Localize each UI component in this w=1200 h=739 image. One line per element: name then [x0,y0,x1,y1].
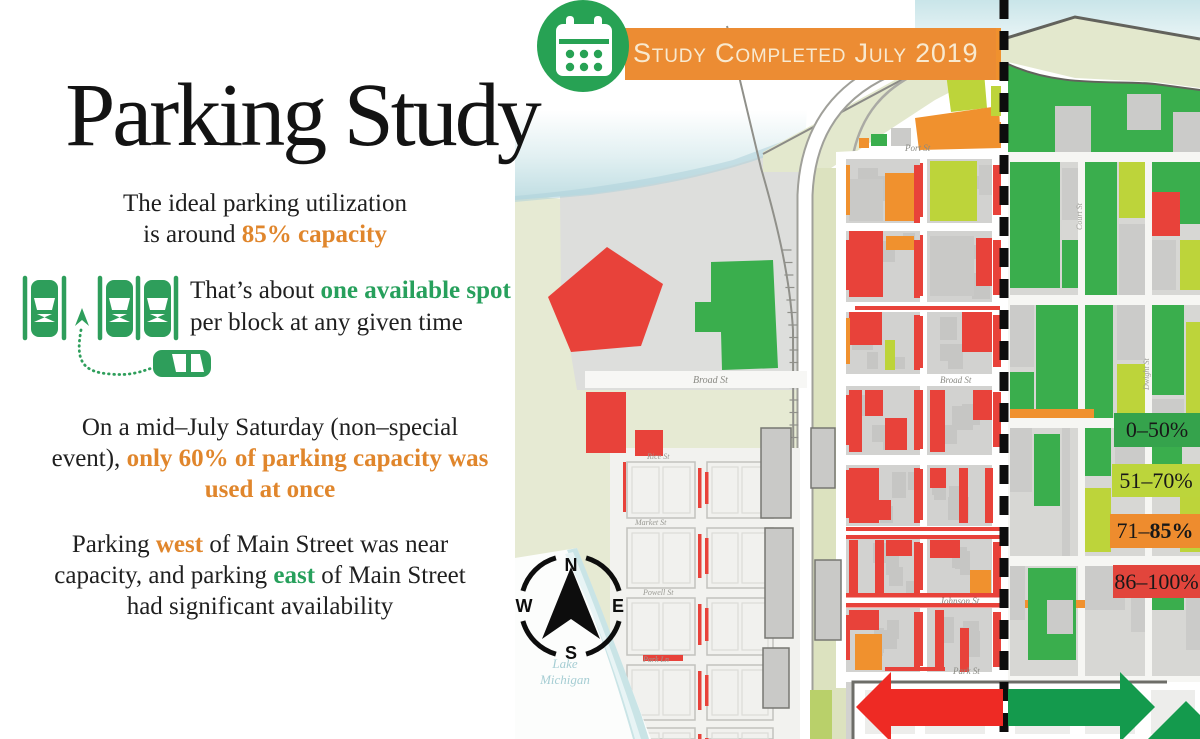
svg-text:Market St: Market St [634,518,667,527]
svg-text:Michigan: Michigan [539,672,590,687]
svg-text:Broad St: Broad St [693,375,728,386]
svg-text:Powell St: Powell St [642,588,674,597]
svg-text:Johnson St: Johnson St [940,596,980,606]
svg-text:Dwight St: Dwight St [1142,357,1151,391]
svg-text:Court St: Court St [1075,202,1084,230]
svg-text:W: W [516,596,533,616]
svg-text:E: E [612,596,624,616]
svg-text:S: S [565,643,577,663]
svg-text:Park Ln: Park Ln [642,655,669,664]
svg-text:Broad St: Broad St [940,375,972,385]
svg-text:Rice St: Rice St [646,452,670,461]
svg-text:Port St: Port St [904,143,931,153]
svg-text:N: N [565,555,578,575]
